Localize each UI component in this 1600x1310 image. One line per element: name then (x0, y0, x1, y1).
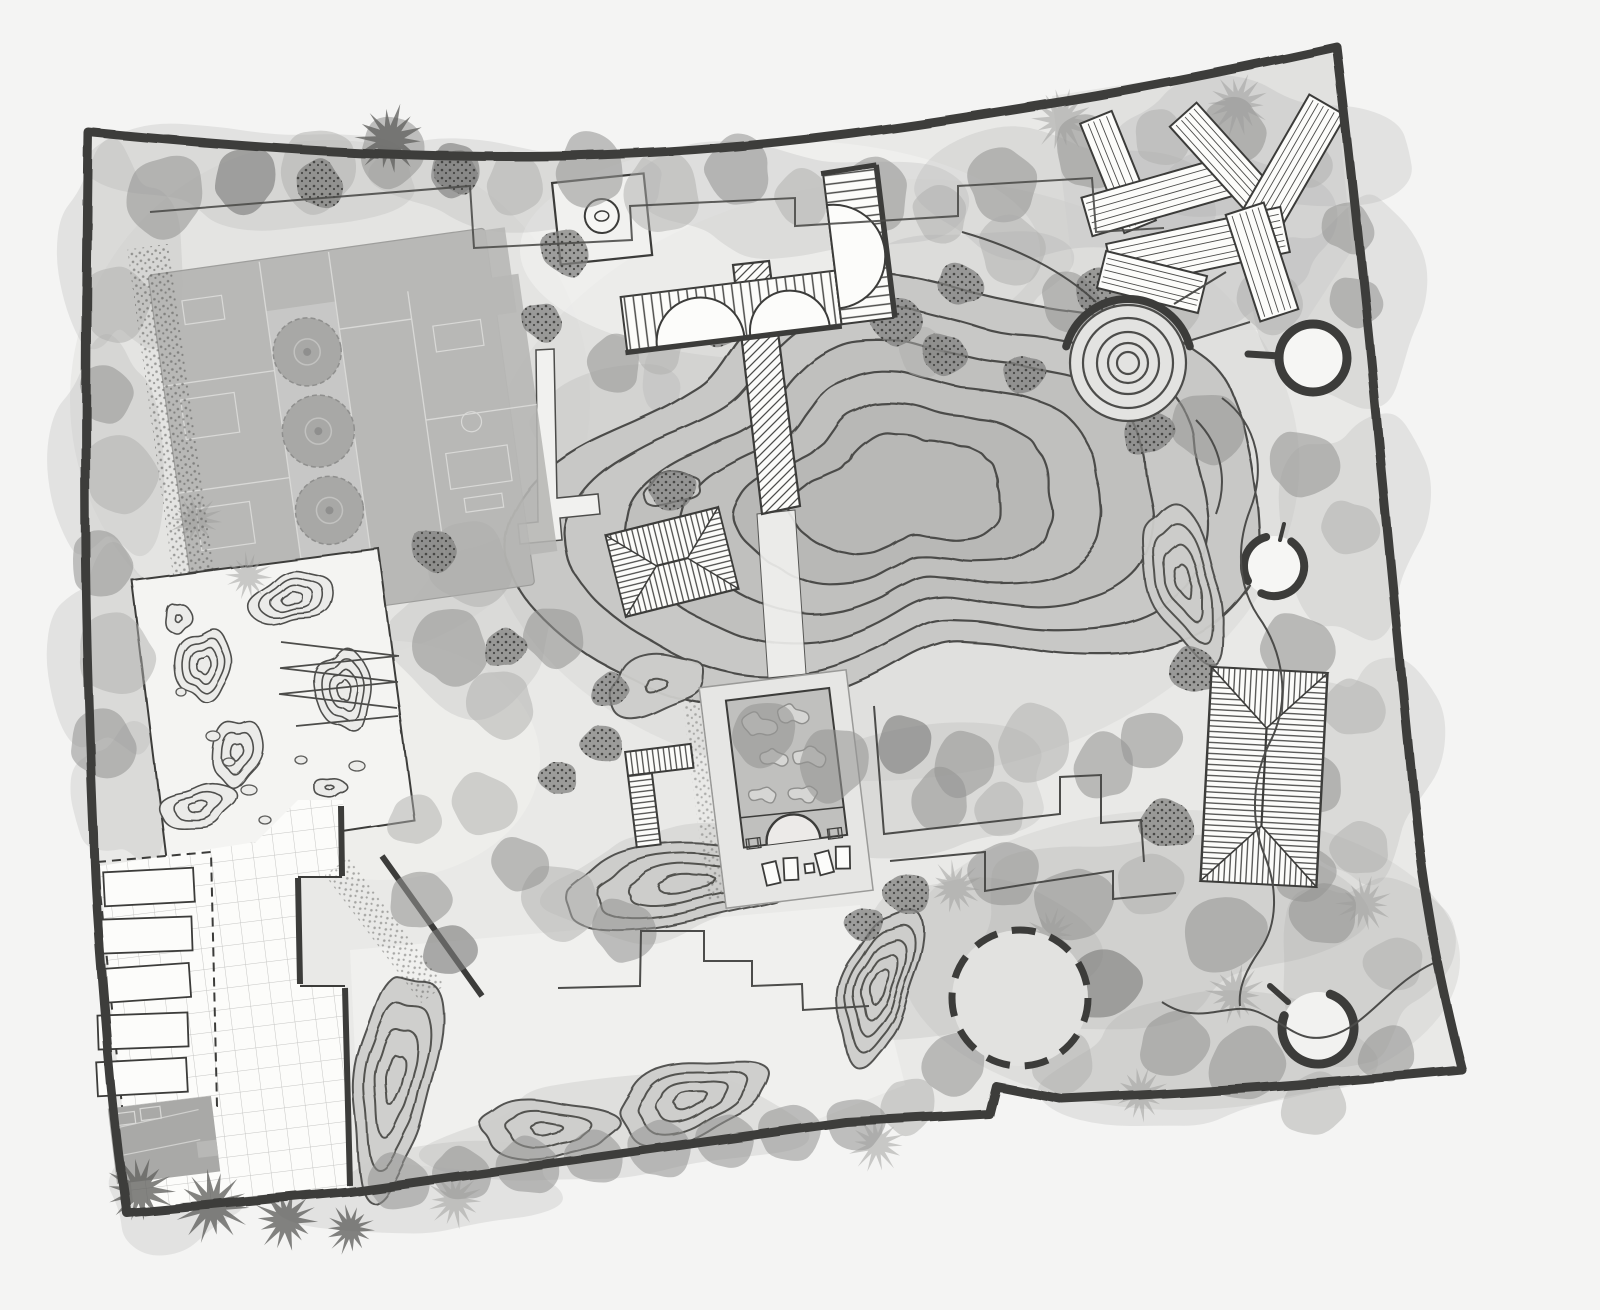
stone-ring-north (1279, 324, 1347, 392)
zen-rock-garden (132, 548, 414, 858)
spiral-mound (1066, 299, 1190, 421)
stone-ring-south (1282, 992, 1354, 1064)
stone-ring-east (1244, 536, 1304, 596)
lawn-circle (952, 930, 1088, 1066)
site-plan-canvas: Hand-drawn garden landscape site plan (g… (0, 0, 1600, 1310)
residence-north-annex (406, 227, 517, 326)
